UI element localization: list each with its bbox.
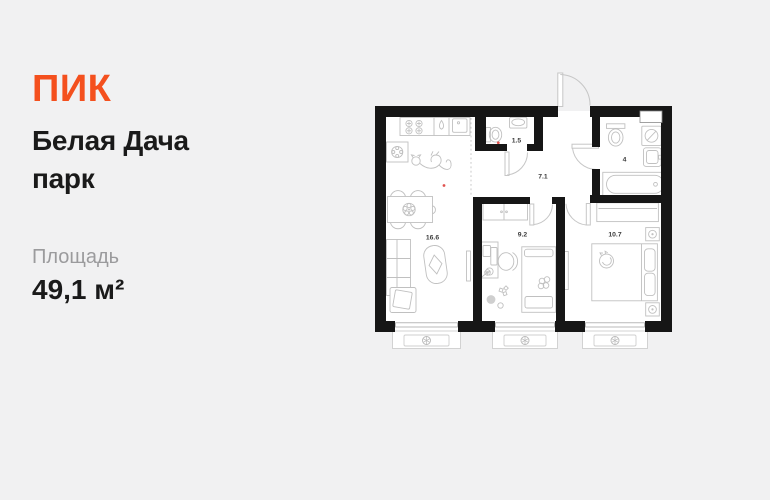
armchair-icon	[390, 288, 416, 313]
wardrobe-icon	[597, 203, 659, 222]
double-bed-icon	[592, 244, 658, 301]
area-value: 49,1 м²	[32, 274, 124, 306]
window	[495, 321, 555, 332]
marker-dot	[497, 141, 500, 144]
room-area-label: 1.5	[512, 137, 522, 144]
area-label: Площадь	[32, 246, 119, 269]
room-area-label: 7.1	[538, 174, 548, 181]
project-title: Белая Дача парк	[32, 122, 272, 197]
room-area-label: 9.2	[518, 232, 528, 239]
hob-icon	[387, 142, 409, 162]
window	[585, 321, 645, 332]
wardrobe-icon	[483, 204, 528, 221]
duct-shaft	[640, 111, 662, 123]
ac-unit-icon	[583, 331, 648, 349]
windows	[395, 321, 645, 332]
project-title-line2: парк	[32, 160, 272, 198]
desk-icon	[481, 242, 498, 278]
project-title-line1: Белая Дача	[32, 122, 272, 160]
room-area-label: 16.6	[426, 235, 439, 242]
pik-logo: ПИК	[32, 70, 111, 108]
radiator-icon	[467, 251, 471, 281]
marker-dot	[443, 184, 446, 187]
ac-unit-icon	[393, 331, 461, 349]
balcony-ac-units	[393, 331, 648, 349]
window	[395, 321, 458, 332]
entrance-door	[558, 73, 590, 107]
floorplan: 16.6 1.5 7.1	[368, 64, 690, 356]
room-area-label: 4	[623, 157, 627, 164]
single-bed-icon	[522, 247, 556, 312]
room-area-label: 10.7	[608, 232, 621, 239]
ac-unit-icon	[493, 331, 558, 349]
